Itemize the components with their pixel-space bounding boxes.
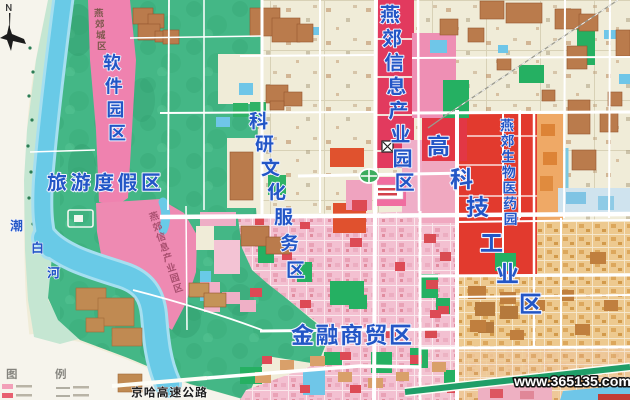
svg-text:www.365135.com: www.365135.com — [513, 374, 630, 390]
